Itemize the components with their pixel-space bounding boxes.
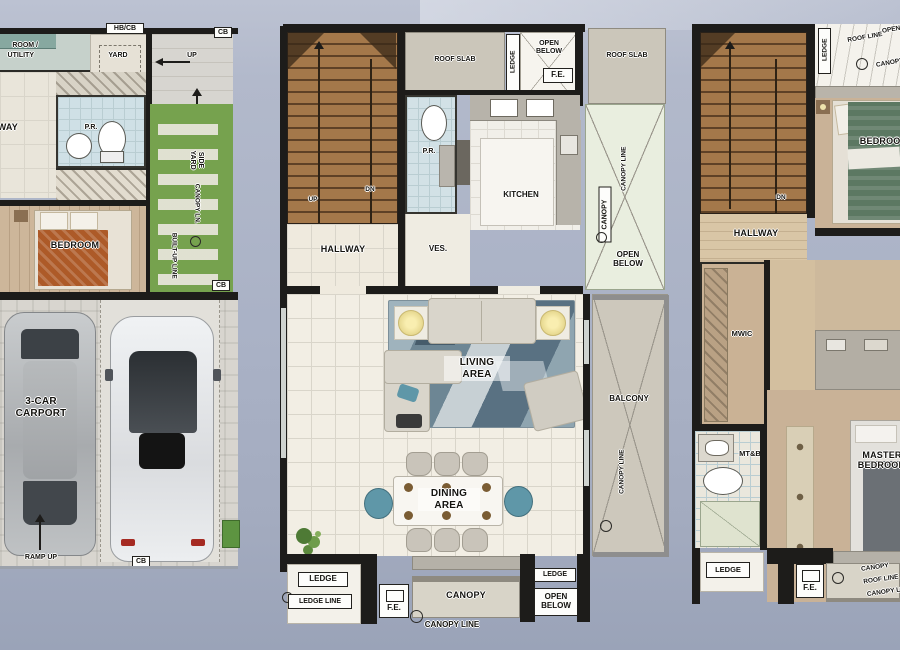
p3-mtb-counter	[698, 434, 734, 462]
p2-kitchen	[470, 95, 580, 230]
p2-ledge-line-tag: LEDGE LINE	[288, 594, 352, 609]
p1-carport-label: 3-CAR CARPORT	[4, 396, 78, 419]
p2-sofa-long	[428, 298, 536, 344]
p3-fe-label: F.E.	[803, 584, 817, 593]
p2-kitchen-island	[480, 138, 554, 226]
p2-fe-bottom-label: F.E.	[387, 604, 401, 613]
p3-hallway-label: HALLWAY	[728, 228, 784, 238]
p2-door-gap-2	[498, 286, 540, 294]
p3-shower	[700, 501, 760, 547]
p3-canopy-marker-top	[856, 58, 868, 70]
p2-shaft	[457, 140, 470, 185]
p2-roof-slab-right-label: ROOF SLAB	[602, 52, 652, 60]
p2-balcony-window-2	[584, 430, 589, 486]
p3-mtb-top-wall	[693, 424, 770, 431]
p3-post-bottom	[778, 560, 794, 604]
p3-canopy-marker-bottom	[832, 572, 844, 584]
p1-entry-arrow-icon	[155, 58, 163, 66]
p2-dining-area-label: DINING AREA	[418, 488, 480, 511]
p1-pr-label: P.R.	[76, 124, 106, 132]
p1-bed-blanket	[38, 230, 108, 286]
p1-side-yard	[150, 104, 233, 300]
p2-hallway-label: HALLWAY	[316, 244, 370, 254]
p2-bottom-wall-left	[287, 554, 363, 564]
p2-left-window	[281, 308, 286, 458]
p2-dining-chair	[462, 452, 488, 476]
p2-left-wall	[280, 26, 287, 572]
p3-dn-arrow-icon	[725, 41, 735, 49]
p1-car-white-mirror-right	[213, 369, 221, 381]
p2-dining-chair	[434, 528, 460, 552]
p2-balcony	[592, 294, 668, 556]
p1-bed-pillow-right	[70, 212, 98, 230]
p2-place-setting	[404, 483, 413, 492]
p1-canopy-line-marker	[190, 236, 201, 247]
p2-roof-slab-left-label: ROOF SLAB	[424, 56, 486, 64]
p2-balcony-window-1	[584, 320, 589, 364]
p2-top-wall	[283, 24, 585, 32]
p1-planter-patch	[222, 520, 240, 548]
p1-toilet-tank	[100, 151, 124, 163]
p2-place-setting	[404, 511, 413, 520]
p2-canopy-marker-upper	[596, 232, 607, 243]
floorplan-collage: ROOM / UTILITY HB/CB YARD CB UP UP HALLW…	[0, 0, 900, 650]
p1-canopy-ln-label: CANOPY LN.	[193, 169, 200, 239]
p2-balcony-label: BALCONY	[596, 394, 662, 403]
p3-master-bed	[850, 420, 900, 572]
p1-car-white-windshield	[129, 351, 197, 433]
p2-roof-slab-right	[588, 28, 666, 104]
p1-up-arrow-icon	[192, 88, 202, 96]
p3-master-bedroom-label: MASTER BEDROOM	[848, 450, 900, 471]
p2-canopy-line-bottom-label: CANOPY LINE	[422, 620, 482, 629]
p2-post-bottom-1	[361, 554, 377, 624]
p2-dining-chair	[434, 452, 460, 476]
p3-ledge-bottom-tag: LEDGE	[706, 562, 750, 578]
p3-shelf-item	[864, 339, 888, 351]
p2-living-area-label: LIVING AREA	[444, 356, 510, 381]
p1-maid-room-label-2: UTILITY	[0, 52, 34, 60]
p3-mwic	[700, 262, 766, 428]
p2-balcony-rail-bottom	[593, 552, 669, 557]
p1-hb-cb-tag: HB/CB	[106, 23, 144, 34]
p1-ramp-arrow-line	[39, 522, 41, 550]
p2-up-label: UP	[302, 196, 324, 203]
p3-top-wall	[695, 24, 821, 32]
p2-wall-stair-kitchen	[398, 24, 405, 292]
p1-bedroom-label: BEDROOM	[38, 240, 112, 250]
p3-ledge-top-label: LEDGE	[821, 25, 828, 75]
p3-mtb-right-wall	[760, 424, 767, 550]
p1-stair-closet	[56, 168, 146, 200]
p2-sink-left	[490, 99, 518, 117]
p2-dining-chair	[406, 528, 432, 552]
p3-fe-box: F.E.	[796, 564, 824, 598]
p2-canopy-line-balcony-label: CANOPY LINE	[618, 436, 625, 508]
p2-pr-label: P.R.	[412, 148, 446, 156]
p3-wardrobe	[704, 268, 728, 422]
p3-shelf-item	[826, 339, 846, 351]
p3-stair-wall	[807, 24, 815, 218]
p1-carport-top-wall	[0, 292, 238, 300]
p3-stair-rail-1	[729, 49, 731, 209]
p3-master-bench	[786, 426, 814, 562]
p2-post-bottom-3	[577, 554, 590, 622]
p2-open-below-top-label: OPEN BELOW	[527, 40, 571, 56]
p2-dining-endchair-left	[364, 488, 393, 519]
p2-open-below-bottom-tag: OPEN BELOW	[534, 588, 578, 616]
p2-place-setting	[482, 483, 491, 492]
p3-master-blanket	[863, 461, 900, 561]
p2-ledge-br-tag: LEDGE	[534, 568, 576, 582]
p3-mtb-sink	[705, 440, 729, 456]
p2-post-bottom-2	[520, 554, 535, 622]
p1-built-up-line-label: BUILT-UP LINE	[170, 220, 177, 292]
p2-balcony-rail-right	[664, 295, 669, 557]
p3-bedroom-label: BEDROOM	[852, 136, 900, 146]
p2-dining-endchair-right	[504, 486, 533, 517]
p2-appliance	[560, 135, 578, 155]
p3-shelf-band	[815, 330, 900, 390]
p2-ves-label: VES.	[418, 244, 458, 253]
p3-bedroom-bottom-wall	[815, 228, 900, 236]
p1-yard-label: YARD	[94, 52, 142, 60]
p1-upper-closet	[56, 72, 146, 95]
p2-place-setting	[442, 511, 451, 520]
p2-plant	[296, 528, 312, 544]
p2-canopy-marker-balcony	[600, 520, 612, 532]
p1-car-white-taillight-left	[121, 539, 135, 546]
p3-bed-throw	[848, 147, 900, 170]
p2-canopy-line-upper-label: CANOPY LINE	[620, 134, 627, 204]
p1-cb-top-tag: CB	[214, 27, 232, 38]
p1-hallway	[0, 72, 56, 198]
p2-open-below-side-label: OPEN BELOW	[604, 250, 652, 268]
p1-car-white	[110, 316, 214, 562]
p2-door-gap-1	[320, 286, 366, 294]
p3-mtb-toilet	[703, 467, 743, 495]
p1-ramp-up-label: RAMP UP	[14, 554, 68, 562]
p1-ramp-arrow-icon	[35, 514, 45, 522]
p1-car-gray-roof	[23, 361, 77, 479]
p2-balcony-rail-top	[593, 295, 669, 300]
p2-window-band	[412, 556, 522, 570]
p3-master-pillow	[855, 425, 897, 443]
p2-up-arrow-icon	[314, 41, 324, 49]
p2-ledge-top-label: LEDGE	[509, 37, 516, 87]
p1-bottom-edge	[0, 566, 238, 569]
p2-fe-top-tag: F.E.	[543, 68, 573, 83]
p2-sofa-cushion-line	[481, 301, 482, 341]
p1-maid-room-label-1: ROOM /	[0, 42, 38, 50]
p2-fe-icon	[386, 590, 404, 602]
p2-dining-chair	[462, 528, 488, 552]
p3-stair-rail-2	[775, 59, 777, 215]
p2-hallway	[287, 224, 398, 286]
p2-coffee-table	[396, 414, 422, 428]
p2-ledge-bl-tag: LEDGE	[298, 572, 348, 587]
p1-car-gray	[4, 312, 96, 556]
p1-nightstand	[14, 210, 28, 222]
p1-car-white-mirror-left	[105, 369, 113, 381]
p2-place-setting	[482, 511, 491, 520]
p1-bed-pillow-left	[40, 212, 68, 230]
p3-bottom-edge	[826, 599, 900, 602]
p3-mwic-label: MWIC	[722, 330, 762, 339]
p1-car-gray-rearglass	[23, 481, 77, 525]
p1-stepping-stones	[158, 110, 218, 294]
p3-dn-label: DN	[770, 194, 792, 201]
p3-bedroom	[815, 98, 900, 230]
p1-car-white-taillight-right	[191, 539, 205, 546]
p2-stairs-landing-shade-2	[360, 33, 396, 69]
p1-car-white-sunroof	[139, 433, 185, 469]
p3-nightstand	[816, 100, 830, 114]
p2-toilet-fixture	[421, 105, 447, 141]
p2-canopy-bottom-label: CANOPY	[436, 590, 496, 600]
p3-lamp	[820, 104, 826, 110]
p2-stair-rail-dn	[370, 59, 372, 223]
p3-master-bottom-wall	[767, 548, 833, 564]
p1-hallway-label: HALLWAY	[0, 122, 18, 132]
p2-sink-right	[526, 99, 554, 117]
p1-car-gray-windshield	[21, 329, 79, 359]
p2-fe-bottom-box: F.E.	[379, 584, 409, 618]
p1-cb-side-tag: CB	[212, 280, 230, 291]
p2-kitchen-label: KITCHEN	[486, 190, 556, 199]
p3-fe-icon	[802, 570, 820, 582]
p1-entry-arrow-line	[162, 61, 190, 63]
p2-lamp-left	[398, 310, 424, 336]
p2-dn-label: DN	[358, 186, 382, 193]
p2-lamp-right	[540, 310, 566, 336]
p1-up-entry-label: UP	[180, 52, 204, 60]
p1-sink-fixture	[66, 133, 92, 159]
p2-dining-chair	[406, 452, 432, 476]
p3-stairs	[700, 32, 807, 214]
p2-kitchen-counter-top	[470, 95, 580, 121]
